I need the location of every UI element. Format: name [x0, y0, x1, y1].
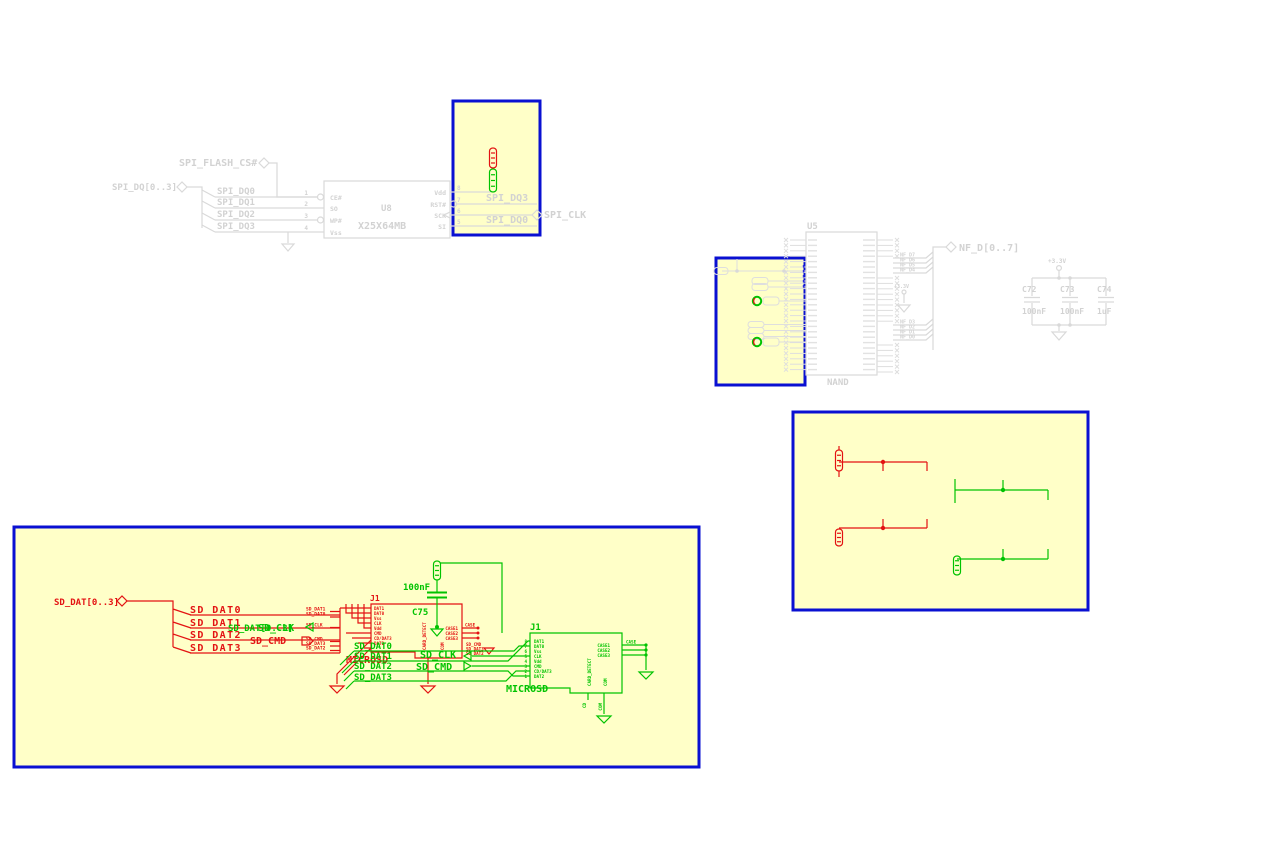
u8-num-1: 1	[304, 190, 308, 197]
u8-pin-vdd: Vdd	[434, 189, 446, 197]
case-net-label: CASE	[465, 623, 476, 628]
u8-bubble-ce	[318, 194, 324, 200]
u8-left-wiring: SPI_FLASH_CS# SPI_DQ[0..3] SPI_DQ0 SPI_D…	[112, 158, 324, 251]
hier-label-spi-dq-bus[interactable]: SPI_DQ[0..3]	[112, 183, 177, 193]
ground-symbol	[1052, 332, 1066, 340]
u8-num-5: 5	[457, 219, 461, 226]
u8-ref: U8	[381, 204, 392, 214]
hier-label-nf-d-bus[interactable]: NF_D[0..7]	[959, 243, 1019, 254]
j1-pin-name: DAT2	[534, 674, 545, 679]
highlight-box-power-rails[interactable]	[793, 412, 1088, 610]
u8-num-6: 6	[457, 208, 461, 215]
power-label-3v3: +3.3V	[894, 284, 909, 290]
net-label-nf-d0[interactable]: NF_D0	[900, 335, 915, 341]
cs-wire	[269, 163, 318, 197]
hier-connector-diamond	[177, 182, 187, 192]
j1-case-pin: CASE3	[597, 653, 610, 658]
u8-num-2: 2	[304, 201, 308, 208]
u8-pin-vss: Vss	[330, 229, 342, 237]
ground-symbol	[898, 305, 910, 312]
j1-card-detect-pin: CARD_DETECT	[422, 622, 427, 650]
hier-label-spi-flash-cs[interactable]: SPI_FLASH_CS#	[179, 158, 257, 169]
j1-com-pin: COM	[603, 678, 608, 686]
u5-right-pin-names	[863, 239, 875, 370]
hier-label-sd-cmd-added[interactable]: SD_CMD	[416, 662, 452, 673]
cap-ref-c72: C72	[1022, 285, 1037, 294]
u8-num-4: 4	[304, 225, 308, 232]
u8-num-8: 8	[457, 185, 461, 192]
u8-pin-ce: CE#	[330, 194, 342, 202]
hier-label-sd-clk2-added[interactable]: SD_CLK	[420, 650, 456, 661]
cap-value-c74: 1uF	[1097, 307, 1112, 316]
hier-label-sd-cmd-removed[interactable]: SD_CMD	[250, 636, 286, 647]
net-label-spi-dq0-right[interactable]: SPI_DQ0	[486, 215, 528, 226]
net-label-nf-d4[interactable]: NF_D4	[900, 268, 915, 274]
j1-ref-added: J1	[530, 623, 541, 633]
net-label-spi-dq2[interactable]: SPI_DQ2	[217, 210, 255, 220]
ground-symbol	[282, 244, 294, 251]
power-symbol	[1057, 266, 1062, 271]
decoupling-cap-cluster[interactable]: +3.3V C72 100nF C73 100nF C74 1uF	[1022, 258, 1114, 340]
cd-net-label: CD	[582, 703, 587, 709]
u8-num-3: 3	[304, 213, 308, 220]
net-label-sd-dat0[interactable]: SD_DAT0	[190, 605, 242, 616]
u5-ref: U5	[807, 222, 818, 232]
u8-pin-so: SO	[330, 205, 338, 213]
nf-bus-spine	[933, 247, 946, 350]
power-label-3v3: +3.3V	[1048, 258, 1066, 265]
hier-label-sd-dat-bus[interactable]: SD_DAT[0..3]	[54, 598, 119, 608]
u5-right-pins-a	[877, 238, 899, 258]
cap-value-c75: 100nF	[403, 583, 430, 593]
net-label-spi-dq0[interactable]: SPI_DQ0	[217, 187, 255, 197]
u8-num-7: 7	[457, 197, 461, 204]
u5-left-pin-names	[808, 239, 817, 370]
net-label-spi-dq3-right[interactable]: SPI_DQ3	[486, 193, 528, 204]
case-net-label: CASE	[626, 640, 637, 645]
hier-label-sd-clk-added[interactable]: SD_CLK	[258, 623, 294, 634]
u8-pin-sck: SCK	[434, 212, 446, 220]
u8-pin-rst: RST#	[430, 201, 446, 209]
u8-pin-si: SI	[438, 223, 446, 231]
cap-value-c73: 100nF	[1060, 307, 1084, 316]
power-symbol	[902, 290, 906, 294]
u5-value: NAND	[827, 378, 849, 388]
net-label-sd-dat3[interactable]: SD_DAT3	[190, 643, 242, 654]
component-u8-spi-flash[interactable]: U8 X25X64MB CE# SO WP# Vss Vdd RST# SCK …	[304, 181, 461, 238]
u5-right-pins-c	[877, 343, 899, 374]
cap-ref-c73: C73	[1060, 285, 1075, 294]
j1-ref-removed: J1	[370, 594, 380, 603]
u8-pin-wp: WP#	[330, 217, 342, 225]
dq-bus-branches	[202, 190, 215, 232]
schematic-diff-canvas: U8 X25X64MB CE# SO WP# Vss Vdd RST# SCK …	[0, 0, 1280, 850]
net-label-spi-dq3[interactable]: SPI_DQ3	[217, 222, 255, 232]
j1-com-pin: COM	[440, 642, 445, 650]
j1-case-pin: CASE3	[445, 636, 458, 641]
u8-bubble-wp	[318, 217, 324, 223]
hier-connector-diamond	[946, 242, 956, 252]
hier-label-spi-clk[interactable]: SPI_CLK	[544, 210, 586, 221]
dq-bus-spine	[187, 187, 202, 228]
small-net-label[interactable]: SD_DAT0	[306, 612, 326, 618]
microsd-label-added: MICROSD	[506, 684, 548, 695]
cap-value-c72: 100nF	[1022, 307, 1046, 316]
u8-value: X25X64MB	[358, 221, 406, 232]
com-net-label: COM	[598, 703, 603, 711]
net-label-spi-dq1[interactable]: SPI_DQ1	[217, 198, 255, 208]
cap-ref-c75: C75	[412, 608, 428, 618]
small-net-label[interactable]: SD_DAT2	[306, 646, 326, 652]
nand-data-bus: NF_D[0..7] NF_D7 NF_D6 NF_D5 NF_D4 NF_D3…	[893, 242, 1019, 350]
cap-ref-c74: C74	[1097, 285, 1112, 294]
hier-connector-diamond	[259, 158, 269, 168]
j1-card-detect-pin: CARD_DETECT	[587, 658, 592, 686]
